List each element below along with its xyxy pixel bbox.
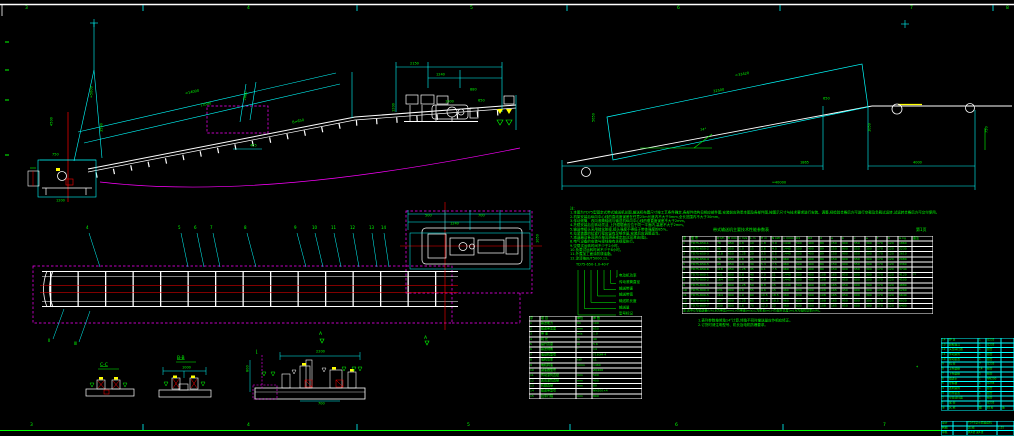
layout-cross-marks bbox=[90, 19, 909, 28]
zone-label: 7 bbox=[910, 6, 913, 11]
cad-drawing-canvas[interactable]: 带式输送机主要技术性能参数表 第1页 序型 号Q t/hB mmv m/sL m… bbox=[0, 0, 1014, 436]
callout-leader bbox=[297, 233, 306, 267]
callout-leader bbox=[247, 233, 256, 267]
profile-diagram bbox=[562, 64, 1012, 190]
callout-label: 7 bbox=[210, 226, 213, 230]
view-label: B-B bbox=[177, 356, 185, 361]
detail-section-large bbox=[250, 352, 365, 401]
table-cell: 序 bbox=[941, 406, 948, 411]
drawing-linework bbox=[0, 0, 1014, 436]
callout-label: 8 bbox=[244, 226, 247, 230]
margin-ticks bbox=[5, 42, 9, 155]
performance-table-title: 带式输送机主要技术性能参数表 bbox=[713, 228, 769, 232]
dim-text: ≈40000 bbox=[772, 181, 786, 185]
callout-label: 12 bbox=[350, 226, 355, 230]
performance-table: 序型 号Q t/hB mmv m/sL mH mN kWn r/minD1D2d… bbox=[682, 236, 933, 314]
dim-text: 4500 bbox=[50, 117, 54, 126]
plan-view bbox=[33, 202, 542, 345]
type-key-label: 型号标记 bbox=[619, 312, 633, 316]
table-cell: 拉紧行程 bbox=[540, 394, 576, 399]
side-elevation-view bbox=[28, 23, 520, 202]
table-cell bbox=[997, 431, 1014, 436]
callout-leader bbox=[197, 233, 204, 267]
spec-table: 序项 目单位参 数1输送能力t/h1002输送带宽度mm6503带 速m/s1.… bbox=[529, 316, 642, 399]
dim-text: 2150 bbox=[410, 62, 419, 66]
table-cell: 共1张 第1张 bbox=[967, 431, 997, 436]
table-cell: 名 称 bbox=[948, 406, 978, 411]
callout-leader bbox=[213, 233, 220, 267]
callout-leader bbox=[315, 233, 323, 267]
dim-text: 455 bbox=[250, 144, 257, 148]
type-key-leader bbox=[585, 270, 617, 309]
callout-label: 5 bbox=[178, 226, 181, 230]
table-cell: 15 bbox=[529, 394, 540, 399]
dim-text: 1000 bbox=[445, 100, 454, 104]
zone-label: 7 bbox=[883, 423, 886, 428]
performance-table-page: 第1页 bbox=[916, 228, 927, 232]
dim-text: 3500 bbox=[100, 123, 104, 132]
callout-label: 13 bbox=[369, 226, 374, 230]
dim-text: 1200 bbox=[56, 199, 65, 203]
callout-leader bbox=[334, 233, 341, 267]
type-key-leader bbox=[604, 270, 616, 290]
dim-text: 750 bbox=[52, 153, 59, 157]
zone-label: 3 bbox=[30, 423, 33, 428]
zone-label: 3 bbox=[25, 6, 28, 11]
table-cell bbox=[953, 431, 967, 436]
dim-text: 1050 bbox=[868, 123, 872, 132]
table-cell: 800 bbox=[592, 394, 642, 399]
callout-label: 9 bbox=[294, 226, 297, 230]
dim-text: ≈5000 bbox=[90, 86, 94, 98]
view-label: A bbox=[424, 336, 427, 341]
type-key-label: 输送带速 bbox=[619, 287, 633, 291]
dim-text: 4000 bbox=[913, 161, 922, 165]
zone-label: 4 bbox=[247, 423, 250, 428]
dim-text: 5650 bbox=[592, 113, 596, 122]
dim-text: 650 bbox=[478, 99, 485, 103]
callout-leader bbox=[384, 233, 389, 267]
parts-list: 14护 罩1Q23513卸料漏斗1Q23512头部清扫器1组合11传动滚筒1组合… bbox=[941, 338, 1014, 411]
view-label: Ⅰ bbox=[256, 350, 257, 355]
zone-label: 8 bbox=[1006, 6, 1009, 11]
zone-label: 5 bbox=[470, 6, 473, 11]
table-cell: 材 料 bbox=[986, 406, 1001, 411]
table-footnote: 注:表中Q为输送量(t/h),B为带宽(mm),v为带速(m/s),L为机长(m… bbox=[682, 309, 933, 314]
callout-leader bbox=[353, 233, 359, 267]
table-cell: 备 bbox=[1001, 406, 1014, 411]
callout-leader bbox=[89, 233, 100, 267]
dim-text: 1240 bbox=[436, 73, 445, 77]
zone-label: 6 bbox=[677, 6, 680, 11]
table-cell: mm bbox=[576, 394, 592, 399]
dim-text: 1240 bbox=[450, 222, 459, 226]
dim-text: 700 bbox=[478, 214, 485, 218]
dim-text: 880 bbox=[470, 88, 477, 92]
title-block: 设计TD75型带式输送机制图总 图1:25审核共1张 第1张 bbox=[941, 421, 1014, 436]
view-label: A bbox=[319, 332, 322, 337]
callout-label: 14 bbox=[381, 226, 386, 230]
zone-label: 4 bbox=[247, 6, 250, 11]
callout-label: 11 bbox=[331, 226, 336, 230]
table-cell: 数 bbox=[978, 406, 986, 411]
dim-text: 750 bbox=[985, 126, 989, 133]
callout-leader bbox=[181, 233, 188, 267]
dim-text: 1865 bbox=[800, 161, 809, 165]
dim-text: 14° bbox=[700, 128, 706, 132]
type-key-code: TD75-650-1.0-40-Y bbox=[576, 263, 609, 267]
type-key-label: 输送量 bbox=[619, 306, 630, 310]
callout-leader bbox=[53, 309, 64, 339]
type-key-label: 输送带宽 bbox=[619, 293, 633, 297]
type-key-leader bbox=[616, 270, 617, 277]
dim-text: 1200 bbox=[392, 103, 396, 112]
dim-text: 1000 bbox=[182, 366, 191, 370]
callout-leader bbox=[79, 311, 90, 342]
dim-text: 1050 bbox=[536, 234, 540, 243]
callout-label: Ⅱ bbox=[48, 339, 50, 343]
dim-text: 700 bbox=[318, 402, 325, 406]
table-note-line: 2.订货时请注明型号、机长及电机防爆要求。 bbox=[698, 324, 768, 328]
type-key-leader bbox=[591, 270, 616, 302]
zone-label: 6 bbox=[675, 423, 678, 428]
callout-label: 6 bbox=[194, 226, 197, 230]
callout-label: 4 bbox=[86, 226, 89, 230]
detail-section-cc bbox=[86, 369, 134, 396]
type-key-label: 电动机功率 bbox=[619, 274, 637, 278]
table-cell: 审核 bbox=[941, 431, 953, 436]
note-line: 12.涂漆按JB/T5000.12。 bbox=[570, 257, 611, 261]
view-label: * bbox=[916, 366, 918, 371]
callout-label: 10 bbox=[312, 226, 317, 230]
type-key-leader bbox=[598, 270, 617, 296]
type-key-label: 传动滚筒直径 bbox=[619, 281, 640, 285]
type-key-label: 输送机长度 bbox=[619, 300, 637, 304]
dim-text: 650 bbox=[823, 97, 830, 101]
sheet-border bbox=[0, 4, 1014, 431]
zone-label: 5 bbox=[467, 423, 470, 428]
callout-label: Ⅲ bbox=[74, 342, 77, 346]
type-key-leader bbox=[611, 270, 617, 283]
table-note-line: 1.表列参数按倾角14°计算,倾角不同时输送量应作相应修正。 bbox=[698, 319, 793, 323]
callout-leader bbox=[372, 233, 377, 267]
dim-text: 500 bbox=[425, 214, 432, 218]
dim-text: 800 bbox=[246, 365, 250, 372]
dim-text: 2200 bbox=[316, 350, 325, 354]
view-label: C-C bbox=[100, 363, 108, 368]
